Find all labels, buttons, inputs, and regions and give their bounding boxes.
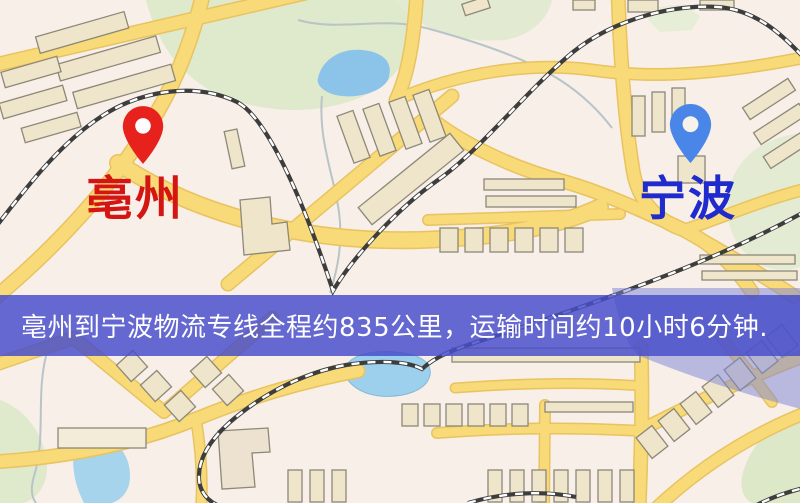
origin-pin-icon[interactable] — [121, 103, 165, 168]
origin-marker[interactable] — [121, 103, 165, 168]
destination-label: 宁波 — [639, 176, 737, 223]
route-banner: 亳州到宁波物流专线全程约835公里，运输时间约10小时6分钟. — [0, 295, 800, 356]
map-canvas[interactable]: 亳州 宁波 亳州到宁波物流专线全程约835公里，运输时间约10小时6分钟. — [0, 0, 800, 503]
destination-marker[interactable] — [668, 101, 713, 167]
destination-pin-icon[interactable] — [668, 101, 713, 167]
route-banner-text: 亳州到宁波物流专线全程约835公里，运输时间约10小时6分钟. — [21, 307, 768, 344]
map-artwork — [0, 0, 800, 503]
origin-label: 亳州 — [86, 176, 184, 223]
